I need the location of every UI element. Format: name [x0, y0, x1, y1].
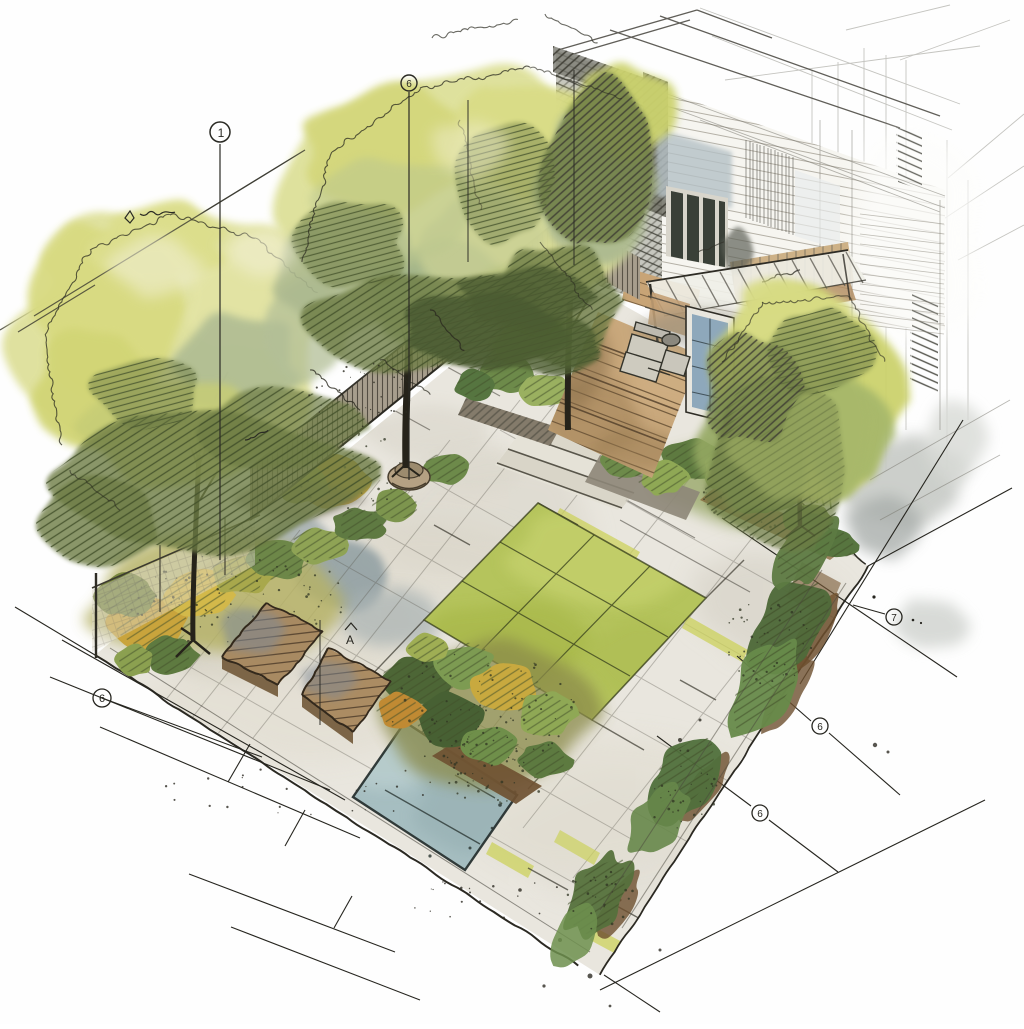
svg-text:6: 6 [406, 79, 412, 90]
svg-text:6: 6 [99, 693, 105, 705]
svg-text:6: 6 [817, 722, 823, 733]
svg-text:6: 6 [757, 809, 763, 820]
svg-text:1: 1 [218, 126, 225, 140]
svg-text:A: A [346, 633, 354, 647]
svg-text:7: 7 [891, 613, 897, 624]
